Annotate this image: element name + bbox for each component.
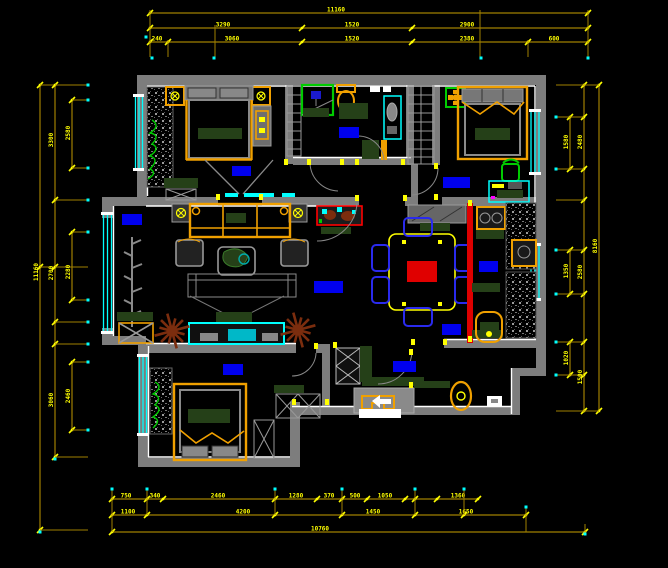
dining-table-center [407, 261, 437, 282]
door-jamb-marker [468, 336, 472, 342]
dimension-text: 2280 [65, 264, 72, 279]
door-jamb-marker [292, 399, 296, 405]
dimension-text: 1450 [366, 509, 381, 516]
dimension-text: 2900 [460, 22, 475, 29]
door-jamb-marker [401, 159, 405, 165]
living-room-label [314, 281, 343, 293]
shelf-white [383, 86, 391, 92]
bench-cushion [164, 178, 198, 188]
corridor [317, 203, 362, 241]
wall-right [536, 85, 546, 375]
wardrobe-speckled-master [147, 87, 173, 187]
dimension-text: 11160 [327, 7, 345, 14]
reference-dot [39, 531, 42, 534]
door-jamb-marker [434, 194, 438, 200]
display-cabinet-red [317, 206, 362, 225]
dimension-text: 1520 [345, 22, 360, 29]
reference-dot [87, 321, 90, 324]
floor-plan-drawing: 1116032901520290024030601520238060075034… [0, 0, 668, 568]
door-swing-corridor [310, 163, 338, 191]
dimension-text: 1020 [563, 350, 570, 365]
reference-dot [555, 293, 558, 296]
dimension-text: 8160 [592, 238, 599, 253]
reference-dot [151, 57, 154, 60]
dimension-text: 10760 [311, 526, 329, 533]
dresser-right [253, 106, 271, 146]
dimension-text: 3300 [48, 132, 55, 147]
shelf-green [274, 385, 304, 393]
shower-shelf [303, 108, 329, 117]
door-jamb-marker [355, 195, 359, 201]
dimension-text: 500 [350, 493, 361, 500]
door-jamb-marker [325, 399, 329, 405]
reference-dot [213, 57, 216, 60]
reference-dot [555, 341, 558, 344]
entry-label [393, 361, 416, 372]
dimension-text: 1100 [121, 509, 136, 516]
double-bed-master [185, 86, 253, 160]
dimension-text: 1650 [459, 509, 474, 516]
dimension-text: 750 [121, 493, 132, 500]
wall-closet-right [432, 85, 440, 165]
reference-dot [54, 458, 57, 461]
dimension-text: 1280 [289, 493, 304, 500]
wall-closet-left [406, 85, 414, 162]
door-jamb-marker [259, 194, 263, 200]
bath-cabinet [362, 140, 379, 159]
door-jamb-marker [284, 159, 288, 165]
reference-dot [274, 488, 277, 491]
bedroom-top-right-label [443, 177, 470, 188]
dimension-text: 370 [324, 493, 335, 500]
reference-dot [587, 57, 590, 60]
kitchen [467, 203, 536, 343]
window-bench-cushion [117, 312, 153, 321]
door-jamb-marker [333, 342, 337, 348]
reference-dot [87, 167, 90, 170]
bathroom-label [339, 127, 359, 138]
door-jamb-marker [340, 159, 344, 165]
entry-label-block [359, 409, 401, 418]
door-jamb-marker [411, 339, 415, 345]
bay-window-label [122, 214, 142, 225]
reference-dot [414, 488, 417, 491]
wall-bath-divider [285, 85, 293, 164]
reference-dot [555, 249, 558, 252]
dimension-text: 3060 [48, 392, 55, 407]
dimension-text: 1520 [345, 36, 360, 43]
door-swing-bedroom-bl [292, 353, 316, 376]
reference-dot [111, 488, 114, 491]
door-jamb-marker [314, 343, 318, 349]
reference-dot [87, 84, 90, 87]
window-bedroom-tr-right [529, 109, 541, 175]
door-jamb-marker [409, 349, 413, 355]
utility-fixture [487, 396, 502, 407]
reference-dot [480, 57, 483, 60]
kitchen-lower-label [442, 324, 461, 335]
wall-top [137, 75, 546, 85]
reference-dot [87, 429, 90, 432]
entry-label-white-block [359, 409, 401, 418]
master-bedroom-label [232, 166, 251, 176]
double-bed-top-right [458, 87, 527, 159]
media-shelf [216, 312, 252, 322]
door-swing-master [205, 160, 273, 194]
wall-bay-top [102, 197, 146, 206]
counter-speckled-bottom [506, 272, 536, 338]
door-jamb-marker [403, 195, 407, 201]
reference-dot [341, 488, 344, 491]
reference-dot [87, 343, 90, 346]
cad-floor-plan-canvas[interactable]: 1116032901520290024030601520238060075034… [0, 0, 668, 568]
reference-dot [555, 116, 558, 119]
reference-dot [584, 533, 587, 536]
counter-green-2 [472, 283, 500, 292]
entry-bench [414, 381, 450, 388]
dimension-text: 1580 [563, 134, 570, 149]
reference-dot [87, 231, 90, 234]
door-jamb-marker [355, 159, 359, 165]
cabinet-green-strip [360, 346, 372, 382]
reference-dot [555, 168, 558, 171]
bath-counter [339, 103, 368, 119]
shelf-white [370, 86, 380, 92]
desk-item-magenta [491, 196, 495, 199]
dimension-text: 3060 [225, 36, 240, 43]
nightstand-right [252, 87, 270, 105]
dimension-text: 240 [152, 36, 163, 43]
wall-corridor-right [411, 164, 418, 206]
bed-runner [188, 409, 230, 423]
wall-living-bottom-b [316, 344, 330, 353]
living-room [117, 204, 308, 344]
reference-dot [87, 99, 90, 102]
wardrobe-speckled-bl [150, 368, 172, 434]
tv-icon [228, 329, 256, 341]
green-chair [502, 160, 519, 182]
bed-runner [475, 128, 510, 140]
reference-dot [87, 361, 90, 364]
door-jamb-marker [468, 200, 472, 206]
dimension-text: 1350 [563, 263, 570, 278]
dimension-text: 2700 [48, 265, 55, 280]
bedroom-bottom-left-label [223, 364, 243, 375]
wall-hall-divider [322, 352, 330, 407]
reference-dot [87, 199, 90, 202]
dimension-text: 3290 [216, 22, 231, 29]
shower-head-icon [311, 91, 321, 99]
kitchen-sink [512, 240, 536, 266]
dimension-text: 2380 [460, 36, 475, 43]
wall-living-bottom-a [146, 344, 296, 353]
dimension-text: 1050 [378, 493, 393, 500]
dimension-text: 2460 [211, 493, 226, 500]
rug [188, 274, 296, 297]
dining-kitchen-label [479, 261, 498, 272]
dimension-text: 2480 [577, 134, 584, 149]
reference-dot [463, 488, 466, 491]
dimension-text: 1360 [451, 493, 466, 500]
window-master-left [133, 94, 144, 171]
sofa-pillow [226, 213, 246, 223]
dimension-text: 2580 [577, 264, 584, 279]
double-bed-bottom-left [174, 384, 246, 460]
reference-dot [525, 506, 528, 509]
coffee-table-with-plant [218, 247, 255, 275]
reference-dot [145, 36, 148, 39]
kitchen-stove [477, 207, 505, 229]
door-jamb-marker [443, 339, 447, 345]
wardrobe-x-panels [254, 394, 320, 458]
dimension-text: 4200 [236, 509, 251, 516]
armchair-right [281, 239, 308, 266]
door-jamb-marker [409, 382, 413, 388]
dimension-text: 340 [150, 493, 161, 500]
wall-entry-step [512, 368, 546, 376]
dimension-text: 2460 [65, 388, 72, 403]
reference-dot [87, 299, 90, 302]
window-bay-living [101, 212, 113, 334]
dimension-text: 600 [549, 36, 560, 43]
armchair-left [176, 239, 203, 266]
reference-dot [555, 374, 558, 377]
dimension-text: 11160 [33, 263, 40, 281]
dimension-text: 1500 [577, 369, 584, 384]
door-jamb-marker [307, 159, 311, 165]
entry-foyer [336, 346, 502, 413]
tv-cabinet [189, 323, 284, 344]
wash-basin [384, 96, 401, 139]
sliding-door-track-red [467, 203, 473, 343]
reference-dot [146, 488, 149, 491]
master-bedroom [147, 86, 273, 200]
dimension-text: 2580 [65, 125, 72, 140]
door-jamb-marker [434, 163, 438, 169]
bed-runner [198, 128, 242, 139]
door-jamb-marker [216, 194, 220, 200]
bed-drape [180, 430, 244, 443]
potted-plant-icon [281, 313, 316, 348]
shoe-cabinet-x [336, 348, 360, 384]
wall-bath-bottom [293, 158, 414, 165]
dining-area [372, 205, 472, 326]
counter-green-1 [476, 230, 504, 239]
